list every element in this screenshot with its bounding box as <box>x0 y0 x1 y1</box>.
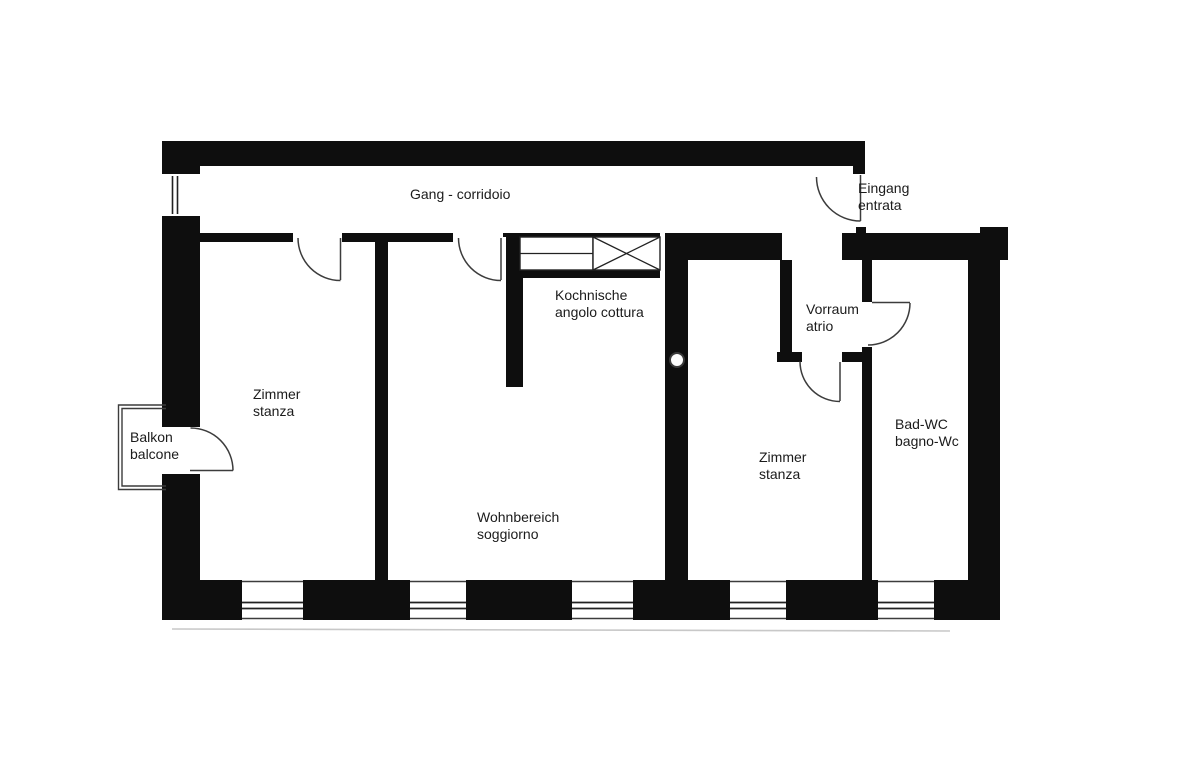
room-label-kochnische: Kochnische angolo cottura <box>555 287 644 320</box>
floor-plan-page: Gang - corridoio Eingang entrata Kochnis… <box>0 0 1200 763</box>
wall-vorraum-stub-left <box>777 352 802 362</box>
room-label-zimmer-left: Zimmer stanza <box>253 386 300 419</box>
flue-circle-symbol <box>670 353 684 367</box>
room-label-zimmer-right: Zimmer stanza <box>759 449 806 482</box>
wall-bad-left-lower <box>862 347 872 580</box>
door-arc-vorraum-zimmer <box>800 362 840 402</box>
door-arc-entrance <box>817 177 861 221</box>
room-label-gang: Gang - corridoio <box>410 186 510 203</box>
room-label-eingang-it: entrata <box>858 197 909 214</box>
doors <box>190 175 910 471</box>
wall-bad-top <box>842 233 1008 260</box>
door-arc-zimmer-left <box>298 238 341 281</box>
wall-zimmer2-top <box>688 233 782 260</box>
window-gap <box>242 580 303 620</box>
wall-left-upper <box>162 216 200 427</box>
room-label-wohnbereich-de: Wohnbereich <box>477 509 559 526</box>
window-left-wall <box>162 174 200 216</box>
room-label-bad-wc: Bad-WC bagno-Wc <box>895 416 959 449</box>
room-label-vorraum: Vorraum atrio <box>806 301 859 334</box>
entrance-jamb-bottom <box>856 227 866 234</box>
room-label-bad-wc-de: Bad-WC <box>895 416 959 433</box>
room-label-kochnische-de: Kochnische <box>555 287 644 304</box>
room-label-wohnbereich-it: soggiorno <box>477 526 559 543</box>
room-label-zimmer-right-de: Zimmer <box>759 449 806 466</box>
wall-corridor-a <box>200 233 293 242</box>
door-arc-balcony <box>191 428 234 471</box>
room-label-balkon-de: Balkon <box>130 429 179 446</box>
room-label-zimmer-left-it: stanza <box>253 403 300 420</box>
wall-right-top-bump <box>980 227 1008 235</box>
room-label-bad-wc-it: bagno-Wc <box>895 433 959 450</box>
wall-bad-left-upper <box>862 258 872 302</box>
window-bottom-2 <box>410 580 466 620</box>
room-label-eingang-de: Eingang <box>858 180 909 197</box>
room-label-kochnische-it: angolo cottura <box>555 304 644 321</box>
room-label-vorraum-it: atrio <box>806 318 859 335</box>
window-gap <box>410 580 466 620</box>
kitchen-counter-front-edge <box>509 270 660 278</box>
window-gap <box>878 580 934 620</box>
window-gap <box>730 580 786 620</box>
door-arc-bad-wc <box>868 303 910 345</box>
room-label-gang-text: Gang - corridoio <box>410 186 510 203</box>
wall-vorraum-left <box>780 260 792 352</box>
window-gap <box>162 174 200 216</box>
floor-plan-drawing <box>0 0 1200 763</box>
kitchen-appliance-x-box <box>593 237 660 270</box>
window-gap <box>572 580 633 620</box>
room-label-eingang: Eingang entrata <box>858 180 909 213</box>
room-label-zimmer-right-it: stanza <box>759 466 806 483</box>
entrance-jamb-top <box>853 141 865 174</box>
window-bottom-1 <box>242 580 303 620</box>
room-label-balkon-it: balcone <box>130 446 179 463</box>
wall-top-left-corner <box>162 141 200 174</box>
wall-right <box>968 233 1000 620</box>
door-arc-wohnbereich <box>459 238 502 281</box>
window-bottom-3 <box>572 580 633 620</box>
scan-artifact-line <box>172 629 950 631</box>
wall-wohnbereich-zimmer2 <box>665 233 688 580</box>
room-label-vorraum-de: Vorraum <box>806 301 859 318</box>
wall-top <box>162 141 857 166</box>
wall-zimmer1-wohnbereich <box>375 233 388 580</box>
window-bottom-5 <box>878 580 934 620</box>
window-bottom-4 <box>730 580 786 620</box>
room-label-wohnbereich: Wohnbereich soggiorno <box>477 509 559 542</box>
room-label-balkon: Balkon balcone <box>130 429 179 462</box>
room-label-zimmer-left-de: Zimmer <box>253 386 300 403</box>
wall-corridor-c <box>388 233 453 242</box>
kitchen-counter <box>520 237 593 270</box>
